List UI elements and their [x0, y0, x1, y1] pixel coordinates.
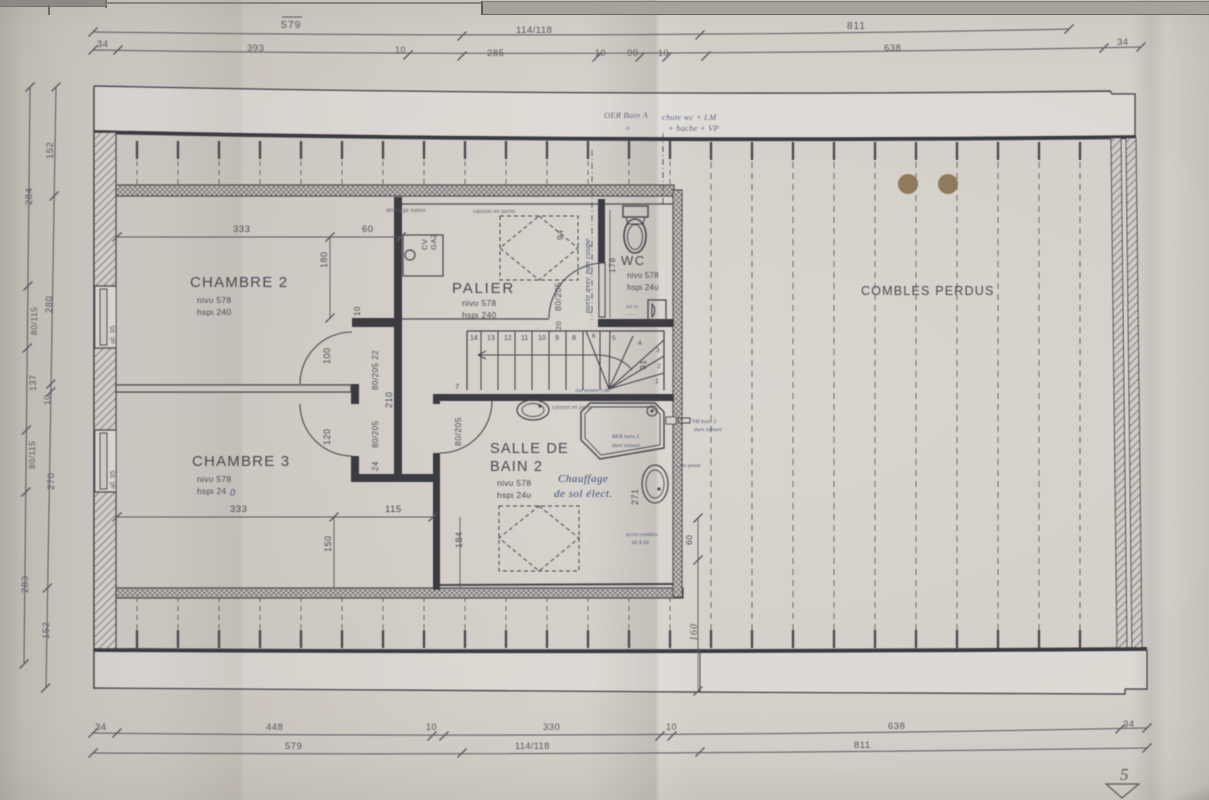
svg-text:811: 811 — [854, 740, 871, 751]
svg-text:9: 9 — [555, 335, 559, 342]
svg-text:PALIER: PALIER — [452, 280, 515, 297]
svg-text:hspɩ 240: hspɩ 240 — [462, 310, 497, 320]
svg-text:160: 160 — [689, 623, 700, 641]
svg-text:284: 284 — [24, 188, 35, 205]
svg-text:333: 333 — [230, 504, 247, 515]
svg-text:SALLE DE: SALLE DE — [490, 441, 569, 457]
svg-text:34: 34 — [1123, 719, 1135, 730]
svg-text:280: 280 — [44, 296, 55, 313]
svg-text:7: 7 — [455, 382, 459, 391]
svg-text:114/118: 114/118 — [515, 741, 550, 751]
svg-text:80/115: 80/115 — [27, 441, 37, 469]
svg-text:CHAMBRE 2: CHAMBRE 2 — [190, 274, 288, 291]
svg-text:0: 0 — [230, 488, 235, 499]
svg-text:94: 94 — [555, 230, 565, 240]
svg-text:178: 178 — [607, 257, 617, 273]
svg-text:hspɩ 24ʋ: hspɩ 24ʋ — [497, 490, 532, 500]
svg-text:90: 90 — [627, 48, 639, 59]
svg-text:120: 120 — [322, 428, 332, 445]
svg-text:579: 579 — [281, 19, 302, 31]
svg-text:137: 137 — [28, 374, 38, 391]
svg-text:OER Bain A: OER Bain A — [604, 110, 648, 120]
svg-text:210: 210 — [384, 391, 394, 408]
svg-text:60 X 60: 60 X 60 — [632, 541, 649, 546]
svg-text:270: 270 — [46, 473, 57, 490]
svg-text:hspɩ 240: hspɩ 240 — [197, 307, 232, 317]
svg-text:5: 5 — [612, 335, 616, 342]
svg-text:152: 152 — [45, 142, 56, 159]
svg-text:sol vc: sol vc — [626, 305, 639, 310]
svg-text:o: o — [626, 124, 630, 132]
svg-text:330: 330 — [543, 722, 560, 733]
svg-text:11: 11 — [521, 335, 528, 342]
svg-text:100: 100 — [322, 347, 332, 364]
svg-text:14: 14 — [470, 335, 478, 342]
svg-text:34: 34 — [97, 39, 109, 50]
svg-text:de sol élect.: de sol élect. — [554, 488, 613, 500]
svg-text:nivʋ 578: nivʋ 578 — [197, 295, 231, 305]
svg-text:10: 10 — [658, 48, 669, 58]
svg-text:13: 13 — [487, 335, 495, 342]
svg-text:WC: WC — [621, 253, 646, 268]
svg-text:10: 10 — [595, 48, 606, 58]
svg-text:12: 12 — [504, 335, 512, 342]
svg-text:COMBLES PERDUS: COMBLES PERDUS — [861, 284, 995, 298]
svg-text:3: 3 — [656, 347, 660, 354]
svg-text:BER bain 2: BER bain 2 — [612, 434, 639, 440]
svg-text:porte avec pan coupe: porte avec pan coupe — [583, 238, 592, 314]
svg-text:h……: h…… — [623, 319, 635, 324]
svg-text:638: 638 — [884, 43, 901, 54]
svg-text:GAZ: GAZ — [429, 233, 438, 250]
svg-text:10: 10 — [395, 45, 406, 55]
svg-text:5: 5 — [1120, 765, 1129, 784]
svg-text:8: 8 — [572, 335, 576, 342]
svg-text:333: 333 — [233, 224, 250, 235]
svg-text:811: 811 — [847, 21, 866, 32]
svg-text:60: 60 — [362, 224, 374, 235]
svg-text:114/118: 114/118 — [516, 25, 552, 36]
svg-text:283: 283 — [20, 576, 31, 593]
svg-text:80/115: 80/115 — [29, 307, 39, 335]
svg-text:décharge ballon: décharge ballon — [386, 208, 426, 214]
svg-text:nivʋ 578: nivʋ 578 — [627, 271, 659, 280]
svg-text:60: 60 — [684, 535, 694, 545]
svg-text:34: 34 — [95, 722, 107, 733]
svg-text:dure toiture: dure toiture — [694, 427, 722, 433]
svg-text:dure toiture: dure toiture — [612, 443, 640, 449]
svg-text:all. 95: all. 95 — [110, 470, 117, 489]
svg-text:10: 10 — [666, 722, 677, 732]
svg-text:……: …… — [626, 312, 636, 317]
svg-text:180: 180 — [319, 251, 329, 268]
svg-text:hspɩ 24ʋ: hspɩ 24ʋ — [627, 283, 659, 292]
svg-text:638: 638 — [888, 721, 905, 732]
svg-text:80/205 22: 80/205 22 — [371, 350, 380, 390]
svg-text:CV: CV — [420, 239, 429, 250]
svg-text:hspɩ 24: hspɩ 24 — [197, 486, 227, 496]
svg-text:91: 91 — [638, 360, 648, 370]
svg-text:152: 152 — [41, 622, 52, 639]
svg-text:all. 95: all. 95 — [110, 325, 117, 344]
svg-text:+ bache + VP: + bache + VP — [668, 123, 719, 133]
svg-text:10: 10 — [42, 395, 52, 405]
svg-text:Chauffage: Chauffage — [558, 473, 608, 485]
svg-text:150: 150 — [323, 535, 333, 552]
svg-text:BAIN 2: BAIN 2 — [490, 459, 543, 475]
svg-text:nivʋ 578: nivʋ 578 — [197, 474, 231, 484]
svg-text:CHAMBRE 3: CHAMBRE 3 — [192, 453, 290, 470]
svg-text:80/205: 80/205 — [371, 420, 380, 448]
svg-text:271: 271 — [630, 488, 640, 505]
svg-text:nivʋ 578: nivʋ 578 — [462, 298, 496, 308]
svg-text:80/205: 80/205 — [553, 282, 563, 311]
svg-text:80/205: 80/205 — [453, 417, 463, 446]
svg-text:10: 10 — [538, 335, 546, 342]
svg-text:6: 6 — [592, 333, 596, 340]
svg-text:caisson en pente: caisson en pente — [473, 209, 515, 215]
svg-text:20: 20 — [554, 321, 563, 330]
svg-text:10: 10 — [426, 722, 437, 732]
svg-text:accès combles: accès combles — [626, 533, 657, 538]
svg-text:2: 2 — [657, 363, 661, 370]
svg-text:34: 34 — [1117, 37, 1129, 48]
svg-text:VH bain 2: VH bain 2 — [692, 419, 716, 425]
svg-text:1: 1 — [655, 378, 659, 385]
svg-text:10: 10 — [353, 306, 362, 316]
svg-text:184: 184 — [454, 531, 464, 548]
svg-text:24: 24 — [371, 461, 380, 471]
svg-text:448: 448 — [266, 722, 283, 733]
svg-text:nivʋ 578: nivʋ 578 — [497, 478, 531, 488]
svg-text:caisson en pente: caisson en pente — [552, 405, 593, 411]
svg-text:115: 115 — [385, 504, 402, 515]
svg-text:chute wc + LM: chute wc + LM — [662, 112, 717, 122]
svg-text:579: 579 — [285, 741, 302, 752]
svg-text:4: 4 — [638, 340, 642, 347]
svg-text:285: 285 — [487, 48, 504, 59]
svg-text:393: 393 — [247, 43, 264, 54]
svg-text:… en pente: … en pente — [674, 463, 701, 469]
svg-text:2nd montée 1,80: 2nd montée 1,80 — [575, 389, 610, 394]
